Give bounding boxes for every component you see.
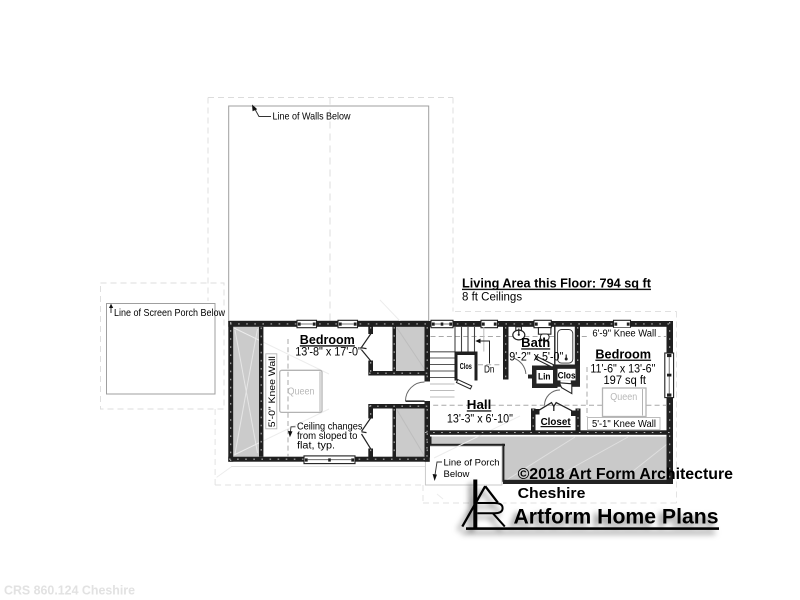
svg-text:©2018 Art Form Architecture: ©2018 Art Form Architecture	[518, 466, 734, 483]
svg-text:Living Area this Floor: 794 sq: Living Area this Floor: 794 sq ft	[462, 275, 652, 290]
svg-text:Line of Walls Below: Line of Walls Below	[273, 111, 351, 123]
svg-text:Artform Home Plans: Artform Home Plans	[514, 505, 719, 529]
svg-text:197 sq ft: 197 sq ft	[604, 375, 647, 387]
svg-text:Clos: Clos	[558, 370, 576, 381]
svg-text:Hall: Hall	[467, 397, 492, 412]
svg-text:5'-1" Knee Wall: 5'-1" Knee Wall	[592, 419, 656, 430]
svg-text:flat, typ.: flat, typ.	[297, 441, 335, 452]
svg-text:Below: Below	[444, 469, 470, 480]
svg-text:5'-0" Knee Wall: 5'-0" Knee Wall	[267, 356, 278, 427]
svg-text:6'-9" Knee Wall: 6'-9" Knee Wall	[592, 328, 656, 339]
svg-text:Dn: Dn	[484, 364, 495, 376]
svg-text:11'-6" x 13'-6": 11'-6" x 13'-6"	[590, 364, 655, 376]
svg-text:Lin: Lin	[538, 372, 551, 383]
svg-text:Bedroom: Bedroom	[595, 346, 651, 361]
svg-text:9'-2" x 5'-0": 9'-2" x 5'-0"	[509, 351, 563, 363]
svg-text:Bedroom: Bedroom	[300, 332, 355, 347]
svg-text:Line of Porch: Line of Porch	[444, 458, 500, 469]
svg-text:13'-8" x 17'-0": 13'-8" x 17'-0"	[295, 346, 362, 358]
svg-text:Queen: Queen	[610, 392, 637, 403]
svg-text:Cheshire: Cheshire	[518, 486, 586, 502]
svg-text:13'-3" x 6'-10": 13'-3" x 6'-10"	[447, 414, 513, 426]
svg-text:Bath: Bath	[521, 335, 550, 350]
svg-text:Line of Screen Porch Below: Line of Screen Porch Below	[114, 307, 225, 319]
svg-text:Clos: Clos	[460, 362, 472, 371]
svg-text:CRS 860.124 Cheshire: CRS 860.124 Cheshire	[4, 584, 135, 598]
svg-text:8 ft Ceilings: 8 ft Ceilings	[462, 292, 522, 304]
svg-text:Queen: Queen	[288, 387, 315, 398]
